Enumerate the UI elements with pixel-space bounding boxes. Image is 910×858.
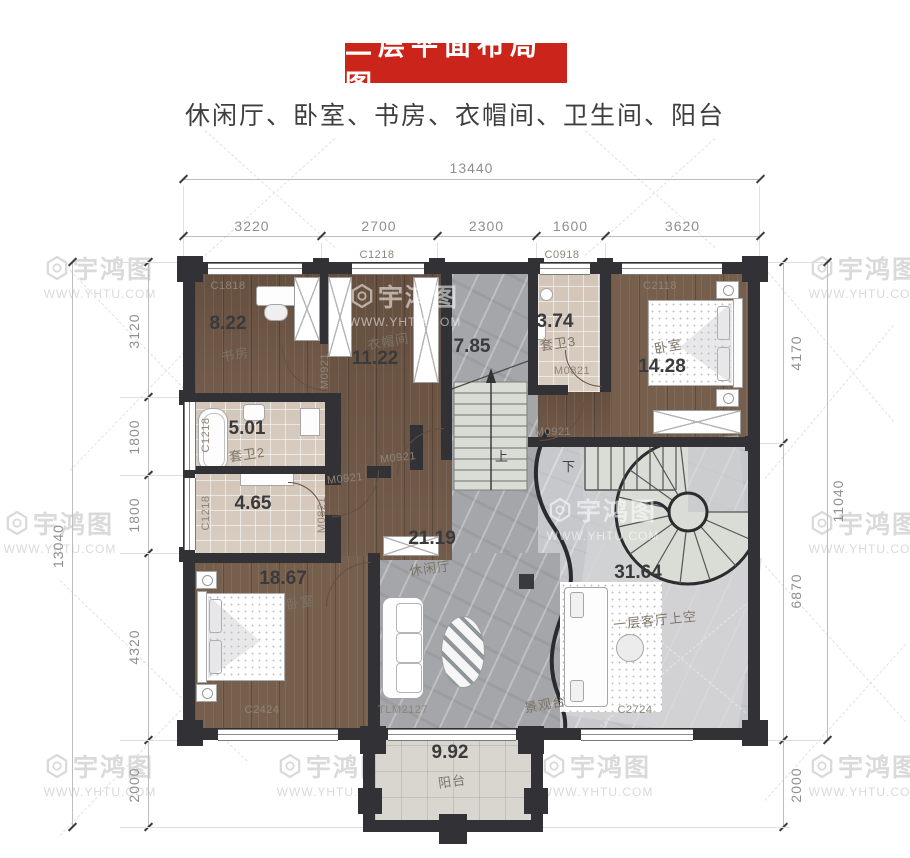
void-boundary-post: [519, 574, 534, 589]
window-c2424: [218, 729, 338, 741]
page-subtitle: 休闲厅、卧室、书房、衣帽间、卫生间、阳台: [0, 96, 910, 132]
dim-seg: 4170: [788, 323, 804, 383]
window-label: C2118: [630, 280, 690, 292]
area-stairhall: 7.85: [437, 336, 507, 358]
dim-seg: 4320: [126, 617, 142, 677]
construction-line: [765, 565, 906, 722]
area-bedroom-ne: 14.28: [627, 356, 697, 378]
cloak-wardrobe-left: [328, 277, 352, 357]
door-label: TLM2127: [373, 704, 433, 716]
window-label: C1218: [200, 483, 212, 543]
corner-pillar: [177, 256, 203, 282]
area-cloak: 11.22: [340, 348, 410, 370]
dim-seg: 6870: [788, 561, 804, 621]
yhtu-logo-icon: [811, 754, 833, 778]
dim-line-top-total: [183, 179, 760, 180]
door-label: M0921: [319, 341, 331, 401]
watermark: 宇鸿图WWW.YHTU.COM: [790, 250, 910, 301]
door-label: M0821: [316, 485, 328, 545]
window-c1218-left-lower: [184, 478, 196, 550]
yhtu-logo-icon: [46, 256, 68, 280]
dim-top-total: 13440: [183, 160, 760, 176]
stair-down-label: 下: [562, 456, 575, 475]
dim-left-total: 13040: [50, 516, 66, 576]
floorplan-page: 宇鸿图WWW.YHTU.COM 宇鸿图WWW.YHTU.COM 宇鸿图WWW.Y…: [0, 0, 910, 858]
dim-seg: 2000: [126, 755, 142, 815]
window-c1218-top: [352, 263, 424, 275]
construction-line: [205, 138, 336, 256]
viewdeck-table: [616, 634, 644, 662]
dim-seg: 1800: [126, 407, 142, 467]
window-c0918: [540, 263, 590, 275]
corner-pillar: [742, 720, 768, 746]
door-label: M0821: [542, 365, 602, 377]
wall-exterior-right: [748, 262, 760, 740]
door-tlm2127-sliding: [388, 729, 516, 741]
yhtu-logo-icon: [279, 754, 301, 778]
balcony-pillar: [360, 726, 386, 754]
balcony-pillar: [518, 726, 544, 754]
bedroom-sw-headboard: [197, 591, 207, 683]
window-c2118: [622, 263, 722, 275]
window-c2724: [581, 729, 693, 741]
yhtu-logo-icon: [543, 754, 565, 778]
window-c1218-left-upper: [184, 402, 196, 470]
study-chair: [264, 304, 288, 321]
window-label: C1218: [200, 405, 212, 465]
area-bath2: 5.01: [212, 418, 282, 440]
bedroom-ne-nightstand: [716, 281, 739, 299]
window-label: C1218: [347, 249, 407, 261]
study-desk: [256, 286, 298, 306]
dim-right-total: 11040: [830, 471, 846, 531]
dim-seg: 3620: [605, 218, 760, 234]
page-title: 二层平面布局图: [345, 43, 567, 83]
viewdeck-pillow: [570, 592, 584, 618]
dim-seg: 1800: [126, 485, 142, 545]
dim-seg: 3220: [183, 218, 321, 234]
dim-seg: 2000: [788, 755, 804, 815]
bedroom-sw-nightstand: [196, 684, 217, 702]
area-void: 31.64: [603, 562, 673, 584]
straight-staircase: [449, 360, 531, 490]
corner-pillar: [177, 720, 203, 746]
store-cabinet: [240, 472, 294, 486]
door-label: M0921: [523, 426, 583, 438]
dim-seg: 2300: [437, 218, 536, 234]
yhtu-logo-icon: [6, 511, 28, 535]
study-wardrobe: [294, 277, 320, 341]
dim-line-left-total: [72, 262, 73, 827]
bedroom-ne-headboard: [733, 298, 743, 388]
construction-line: [765, 325, 894, 479]
window-label: C0918: [532, 249, 592, 261]
area-study: 8.22: [193, 313, 263, 335]
construction-line: [765, 644, 906, 801]
dim-line-right-total: [827, 262, 828, 740]
watermark: 宇鸿图WWW.YHTU.COM: [790, 505, 910, 556]
bedroom-ne-wardrobe: [653, 410, 741, 434]
stair-up-label: 上: [495, 446, 508, 465]
bedroom-ne-nightstand: [716, 389, 739, 407]
dim-line-left-segments: [148, 262, 149, 827]
area-store: 4.65: [218, 493, 288, 515]
dim-seg: 2700: [321, 218, 437, 234]
window-label: C1818: [198, 280, 258, 292]
bath2-sink: [300, 408, 320, 436]
area-bedroom-sw: 18.67: [248, 568, 318, 590]
window-label: C2724: [605, 704, 665, 716]
balcony-pillar: [358, 788, 382, 814]
yhtu-logo-icon: [46, 754, 68, 778]
area-lounge: 21.19: [397, 528, 467, 550]
window-label: C2424: [232, 704, 292, 716]
area-balcony: 9.92: [415, 742, 485, 764]
dim-seg: 1600: [536, 218, 605, 234]
corner-pillar: [742, 256, 768, 282]
balcony-pillar: [524, 788, 548, 814]
dim-line-top-segments: [183, 236, 760, 237]
balcony-pillar: [439, 814, 467, 844]
bedroom-sw-nightstand: [196, 571, 217, 589]
dim-seg: 3120: [126, 301, 142, 361]
lounge-rug: [441, 616, 485, 688]
window-c1818: [208, 263, 302, 275]
watermark: 宇鸿图WWW.YHTU.COM: [790, 748, 910, 799]
dim-line-right-segments: [783, 262, 784, 827]
watermark: 宇鸿图WWW.YHTU.COM: [0, 505, 135, 556]
bath3-sink: [540, 288, 553, 301]
